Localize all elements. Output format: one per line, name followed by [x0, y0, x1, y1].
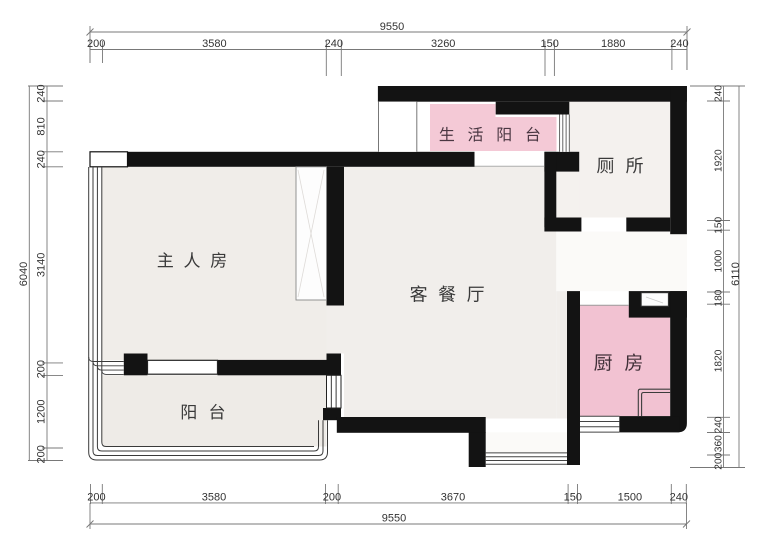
svg-text:200: 200	[87, 492, 105, 504]
svg-text:1820: 1820	[714, 349, 725, 372]
svg-text:6040: 6040	[18, 262, 30, 286]
svg-text:200: 200	[87, 38, 105, 50]
svg-text:200: 200	[36, 445, 48, 463]
svg-text:1880: 1880	[601, 38, 625, 50]
svg-text:180: 180	[714, 289, 725, 306]
svg-text:1200: 1200	[36, 399, 48, 423]
svg-text:150: 150	[714, 216, 725, 233]
svg-text:240: 240	[714, 85, 725, 102]
svg-text:200: 200	[36, 360, 48, 378]
svg-text:1920: 1920	[714, 149, 725, 172]
svg-text:3260: 3260	[431, 38, 455, 50]
svg-text:200: 200	[323, 492, 341, 504]
svg-text:240: 240	[670, 492, 688, 504]
svg-text:3580: 3580	[202, 492, 226, 504]
svg-text:810: 810	[36, 117, 48, 135]
svg-text:240: 240	[36, 150, 48, 168]
svg-text:240: 240	[325, 38, 343, 50]
svg-text:360: 360	[714, 435, 725, 452]
svg-text:240: 240	[714, 416, 725, 433]
svg-text:150: 150	[541, 38, 559, 50]
svg-text:150: 150	[564, 492, 582, 504]
svg-text:3580: 3580	[202, 38, 226, 50]
svg-text:240: 240	[670, 38, 688, 50]
svg-text:200: 200	[714, 452, 725, 469]
svg-text:240: 240	[36, 84, 48, 102]
svg-text:1000: 1000	[714, 249, 725, 272]
svg-text:3140: 3140	[36, 253, 48, 277]
svg-text:3670: 3670	[441, 492, 465, 504]
svg-text:6110: 6110	[730, 262, 742, 286]
svg-text:9550: 9550	[380, 21, 404, 33]
svg-text:1500: 1500	[618, 492, 642, 504]
svg-text:9550: 9550	[382, 513, 406, 525]
